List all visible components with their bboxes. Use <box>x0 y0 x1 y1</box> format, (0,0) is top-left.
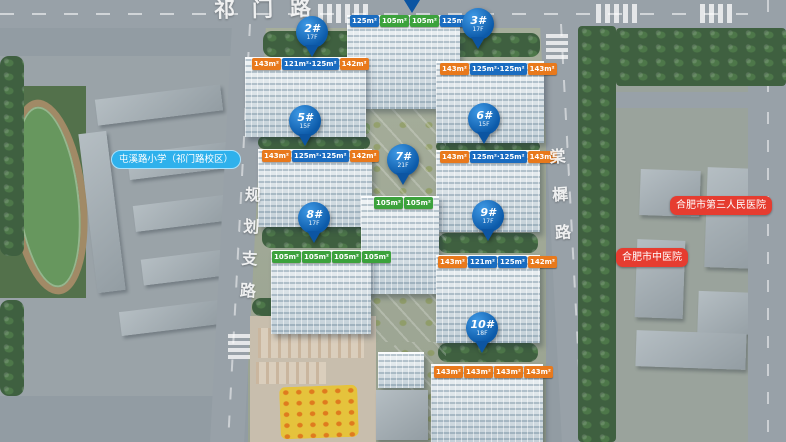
marker-building-10[interactable]: 10# 18F <box>466 312 498 353</box>
pin-icon: 7# 21F <box>387 144 419 176</box>
marker-floors: 15F <box>478 121 489 128</box>
unit-labels-building-8: 105m² 105m² 105m² 105m² <box>272 251 391 263</box>
marker-number: 7# <box>395 151 410 162</box>
unit-size-label: 143m² <box>438 256 467 268</box>
unit-size-label: 142m² <box>350 150 379 162</box>
unit-labels-building-6: 143m² 125m²·125m² 143m² <box>440 151 557 163</box>
unit-size-label: 143m² <box>440 151 469 163</box>
building-small <box>376 390 428 440</box>
pin-icon: 9# 17F <box>472 200 504 232</box>
pin-icon: 6# 15F <box>468 103 500 135</box>
tree-grove <box>0 56 24 256</box>
unit-labels-building-2: 143m² 121m²·125m² 142m² <box>252 58 369 70</box>
unit-size-label: 105m² <box>404 197 433 209</box>
marker-number: 3# <box>470 15 485 26</box>
unit-size-label: 125m² <box>350 15 379 27</box>
marker-building-9[interactable]: 9# 17F <box>472 200 504 241</box>
unit-size-label: 105m² <box>272 251 301 263</box>
marker-floors: 21F <box>397 162 408 169</box>
marker-tail-cropped <box>404 0 420 13</box>
crosswalk <box>546 34 568 59</box>
crosswalk <box>700 4 732 23</box>
pin-tail-icon <box>305 45 319 57</box>
unit-size-label: 125m²·125m² <box>470 63 527 75</box>
unit-size-label: 143m² <box>252 58 281 70</box>
poi-hospital-tcm-bubble: 合肥市中医院 <box>616 248 688 267</box>
tree-band-right <box>578 26 616 442</box>
marker-number: 5# <box>297 112 312 123</box>
tree-grove <box>0 300 24 396</box>
unit-size-label: 143m² <box>464 366 493 378</box>
pin-icon: 8# 17F <box>298 202 330 234</box>
unit-labels-building-7: 105m² 105m² <box>374 197 433 209</box>
marker-building-3[interactable]: 3# 17F <box>462 8 494 49</box>
unit-size-label: 105m² <box>374 197 403 209</box>
unit-size-label: 105m² <box>410 15 439 27</box>
pin-icon: 5# 15F <box>289 105 321 137</box>
pin-tail-icon <box>475 341 489 353</box>
unit-size-label: 143m² <box>494 366 523 378</box>
pin-icon: 3# 17F <box>462 8 494 40</box>
unit-size-label: 105m² <box>332 251 361 263</box>
pin-tail-icon <box>307 231 321 243</box>
marker-floors: 17F <box>306 34 317 41</box>
unit-size-label: 105m² <box>380 15 409 27</box>
unit-size-label: 143m² <box>262 150 291 162</box>
unit-size-label: 143m² <box>524 366 553 378</box>
masterplan-aerial-map: 125m² 105m² 105m² 125m² 143m² 121m²·125m… <box>0 0 786 442</box>
pin-tail-icon <box>471 37 485 49</box>
unit-size-label: 125m² <box>498 256 527 268</box>
unit-size-label: 125m²·125m² <box>470 151 527 163</box>
unit-size-label: 105m² <box>302 251 331 263</box>
unit-size-label: 143m² <box>434 366 463 378</box>
marker-floors: 15F <box>299 123 310 130</box>
unit-size-label: 125m²·125m² <box>292 150 349 162</box>
unit-labels-building-1: 125m² 105m² 105m² 125m² <box>350 15 469 27</box>
crosswalk <box>228 334 250 359</box>
unit-labels-building-9: 143m² 121m² 125m² 142m² <box>438 256 557 268</box>
marker-floors: 17F <box>472 26 483 33</box>
pin-tail-icon <box>396 173 410 185</box>
pin-tail-icon <box>298 134 312 146</box>
marker-building-6[interactable]: 6# 15F <box>468 103 500 144</box>
unit-size-label: 121m² <box>468 256 497 268</box>
pin-icon: 10# 18F <box>466 312 498 344</box>
marker-number: 9# <box>480 207 495 218</box>
building-small <box>378 352 424 388</box>
unit-size-label: 105m² <box>362 251 391 263</box>
hospital-building <box>635 330 746 370</box>
unit-labels-building-10: 143m² 143m² 143m² 143m² <box>434 366 553 378</box>
road-hospital-access <box>612 92 786 108</box>
building-7 <box>361 196 439 294</box>
marker-number: 6# <box>476 110 491 121</box>
marker-building-8[interactable]: 8# 17F <box>298 202 330 243</box>
pin-tail-icon <box>477 132 491 144</box>
poi-school-bubble: 屯溪路小学（祁门路校区） <box>111 150 241 169</box>
marker-floors: 17F <box>308 220 319 227</box>
unit-size-label: 121m²·125m² <box>282 58 339 70</box>
pin-icon: 2# 17F <box>296 16 328 48</box>
unit-labels-building-3: 143m² 125m²·125m² 143m² <box>440 63 557 75</box>
kindergarten-playground <box>279 385 359 440</box>
unit-size-label: 142m² <box>340 58 369 70</box>
marker-number: 2# <box>304 23 319 34</box>
marker-building-2[interactable]: 2# 17F <box>296 16 328 57</box>
marker-building-5[interactable]: 5# 15F <box>289 105 321 146</box>
tree-grove <box>616 28 786 86</box>
unit-labels-building-5: 143m² 125m²·125m² 142m² <box>262 150 379 162</box>
unit-size-label: 143m² <box>440 63 469 75</box>
unit-size-label: 143m² <box>528 63 557 75</box>
crosswalk <box>596 4 637 23</box>
marker-number: 10# <box>471 319 494 330</box>
marker-floors: 17F <box>482 218 493 225</box>
pin-tail-icon <box>481 229 495 241</box>
marker-floors: 18F <box>476 330 487 337</box>
poi-hospital-third-bubble: 合肥市第三人民医院 <box>670 196 772 215</box>
marker-building-7[interactable]: 7# 21F <box>387 144 419 185</box>
kindergarten-building <box>256 362 326 384</box>
marker-number: 8# <box>306 209 321 220</box>
